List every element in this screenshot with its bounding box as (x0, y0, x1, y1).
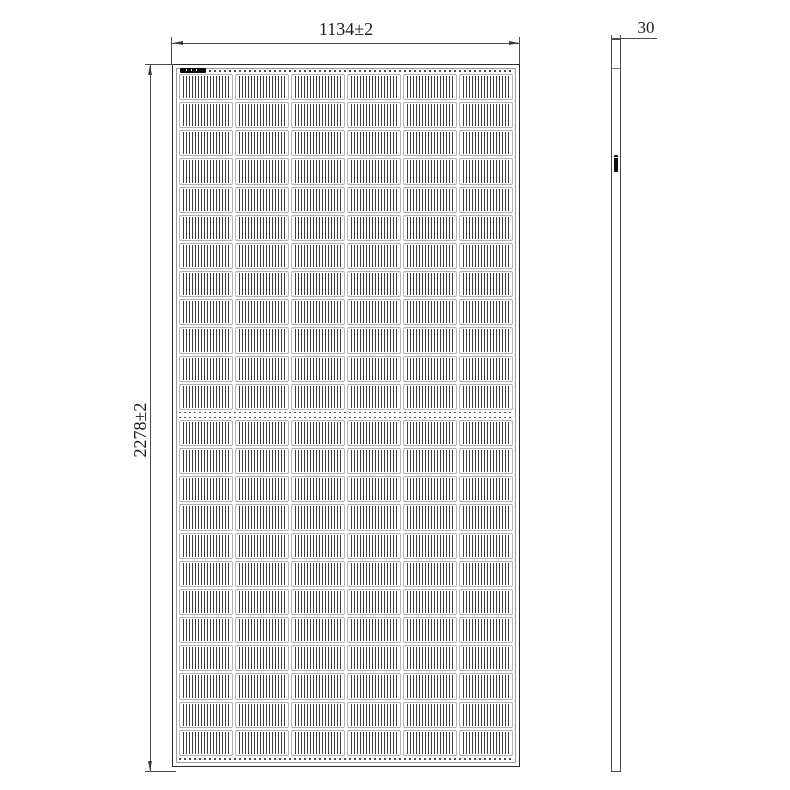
solar-cell (235, 702, 289, 728)
solar-cell (291, 158, 345, 184)
solar-cell (403, 589, 457, 615)
solar-cell (291, 730, 345, 756)
drawing-canvas: 1134±2 2278±2 30 (0, 0, 790, 790)
solar-cell (403, 327, 457, 353)
solar-cell (235, 561, 289, 587)
width-dim-arrow-left (173, 41, 183, 45)
solar-cell (459, 187, 513, 213)
solar-cell (347, 533, 401, 559)
solar-cell (235, 130, 289, 156)
solar-cell (347, 384, 401, 410)
thickness-dim-label: 30 (630, 18, 662, 38)
solar-cell (403, 299, 457, 325)
solar-cell (459, 299, 513, 325)
solar-cell (179, 299, 233, 325)
solar-cell (179, 74, 233, 100)
solar-cell (459, 561, 513, 587)
solar-cell (403, 476, 457, 502)
solar-cell (235, 420, 289, 446)
solar-cell (347, 617, 401, 643)
solar-cell (235, 299, 289, 325)
solar-cell (235, 730, 289, 756)
solar-cell (291, 561, 345, 587)
solar-cell (403, 187, 457, 213)
solar-cell (235, 533, 289, 559)
solar-cell (347, 102, 401, 128)
solar-cell (459, 589, 513, 615)
solar-cell (235, 158, 289, 184)
solar-cell (179, 673, 233, 699)
solar-cell (179, 130, 233, 156)
cell-grid-area (179, 68, 513, 760)
solar-cell (459, 74, 513, 100)
solar-cell (347, 243, 401, 269)
solar-cell (235, 476, 289, 502)
solar-cell (459, 327, 513, 353)
side-frame-edge-line (612, 68, 620, 69)
solar-cell (459, 673, 513, 699)
solar-cell (179, 158, 233, 184)
solar-cell (235, 617, 289, 643)
solar-cell (459, 448, 513, 474)
cell-grid-top-half (179, 74, 513, 410)
solar-cell (291, 243, 345, 269)
solar-cell (459, 645, 513, 671)
solar-cell (403, 158, 457, 184)
solar-cell (403, 617, 457, 643)
solar-cell (403, 384, 457, 410)
solar-cell (291, 589, 345, 615)
solar-cell (291, 74, 345, 100)
solar-cell (347, 215, 401, 241)
solar-cell (403, 130, 457, 156)
width-dim-arrow-right (509, 41, 519, 45)
solar-cell (403, 561, 457, 587)
solar-cell (347, 645, 401, 671)
solar-cell (347, 702, 401, 728)
solar-cell (459, 504, 513, 530)
solar-cell (347, 327, 401, 353)
panel-side-view (611, 39, 621, 772)
solar-cell (347, 130, 401, 156)
panel-front-view (172, 64, 520, 767)
width-dim-extension-right (519, 37, 520, 64)
solar-cell (347, 730, 401, 756)
solar-cell (347, 476, 401, 502)
solar-cell (291, 673, 345, 699)
solar-cell (179, 645, 233, 671)
solar-cell (459, 271, 513, 297)
solar-cell (459, 158, 513, 184)
solar-cell (179, 271, 233, 297)
solar-cell (403, 702, 457, 728)
solar-cell (179, 384, 233, 410)
serial-label-icon (180, 68, 206, 73)
solar-cell (403, 730, 457, 756)
solar-cell (235, 384, 289, 410)
solar-cell (291, 448, 345, 474)
solar-cell (403, 356, 457, 382)
solar-cell (347, 271, 401, 297)
solar-cell (235, 327, 289, 353)
solar-cell (459, 533, 513, 559)
solar-cell (179, 327, 233, 353)
solar-cell (235, 673, 289, 699)
solar-cell (291, 702, 345, 728)
solar-cell (459, 130, 513, 156)
solar-cell (403, 74, 457, 100)
solar-cell (235, 589, 289, 615)
solar-cell (459, 243, 513, 269)
solar-cell (291, 476, 345, 502)
width-dim-extension-left (171, 37, 172, 64)
solar-cell (235, 187, 289, 213)
solar-cell (459, 356, 513, 382)
solar-cell (235, 356, 289, 382)
solar-cell (403, 243, 457, 269)
solar-cell (347, 299, 401, 325)
solar-cell (459, 384, 513, 410)
solar-cell (291, 384, 345, 410)
solar-cell (403, 504, 457, 530)
height-dim-label: 2278±2 (130, 387, 150, 473)
top-ribbon-dots (209, 70, 513, 72)
solar-cell (291, 504, 345, 530)
solar-cell (403, 215, 457, 241)
solar-cell (347, 561, 401, 587)
solar-cell (347, 448, 401, 474)
solar-cell (291, 327, 345, 353)
solar-cell (347, 158, 401, 184)
solar-cell (347, 356, 401, 382)
solar-cell (347, 589, 401, 615)
solar-cell (179, 243, 233, 269)
solar-cell (179, 702, 233, 728)
junction-box-mark (614, 155, 618, 172)
solar-cell (459, 617, 513, 643)
solar-cell (459, 215, 513, 241)
solar-cell (459, 102, 513, 128)
solar-cell (291, 356, 345, 382)
solar-cell (179, 589, 233, 615)
solar-cell (291, 420, 345, 446)
solar-cell (403, 645, 457, 671)
solar-cell (235, 102, 289, 128)
solar-cell (403, 673, 457, 699)
solar-cell (459, 420, 513, 446)
solar-cell (347, 420, 401, 446)
solar-cell (403, 420, 457, 446)
solar-cell (235, 243, 289, 269)
width-dim-label: 1134±2 (272, 19, 420, 39)
solar-cell (235, 448, 289, 474)
solar-cell (291, 533, 345, 559)
solar-cell (291, 130, 345, 156)
solar-cell (347, 74, 401, 100)
solar-cell (291, 617, 345, 643)
solar-cell (347, 504, 401, 530)
solar-cell (291, 299, 345, 325)
solar-cell (235, 271, 289, 297)
thickness-dim-tick-right (620, 35, 621, 42)
solar-cell (403, 102, 457, 128)
solar-cell (179, 215, 233, 241)
solar-cell (179, 730, 233, 756)
solar-cell (179, 533, 233, 559)
solar-cell (291, 215, 345, 241)
solar-cell (179, 356, 233, 382)
solar-cell (179, 420, 233, 446)
center-busbar-band (179, 411, 513, 419)
solar-cell (179, 448, 233, 474)
height-dim-line (150, 64, 151, 772)
solar-cell (235, 645, 289, 671)
height-dim-arrow-bottom (148, 761, 152, 771)
solar-cell (179, 617, 233, 643)
solar-cell (403, 533, 457, 559)
thickness-dim-tick-left (611, 35, 612, 42)
solar-cell (347, 187, 401, 213)
solar-cell (403, 448, 457, 474)
solar-cell (179, 476, 233, 502)
cell-grid-bottom-half (179, 420, 513, 756)
solar-cell (459, 476, 513, 502)
solar-cell (403, 271, 457, 297)
solar-cell (291, 187, 345, 213)
top-bus-ribbon (179, 68, 513, 73)
solar-cell (179, 187, 233, 213)
solar-cell (235, 504, 289, 530)
thickness-dim-line (611, 38, 657, 39)
height-dim-arrow-top (148, 65, 152, 75)
solar-cell (291, 102, 345, 128)
solar-cell (459, 730, 513, 756)
bottom-bus-ribbon (179, 758, 513, 760)
solar-cell (291, 645, 345, 671)
solar-cell (235, 74, 289, 100)
width-dim-line (172, 43, 520, 44)
solar-cell (235, 215, 289, 241)
solar-cell (179, 561, 233, 587)
solar-cell (347, 673, 401, 699)
solar-cell (459, 702, 513, 728)
solar-cell (291, 271, 345, 297)
solar-cell (179, 504, 233, 530)
solar-cell (179, 102, 233, 128)
